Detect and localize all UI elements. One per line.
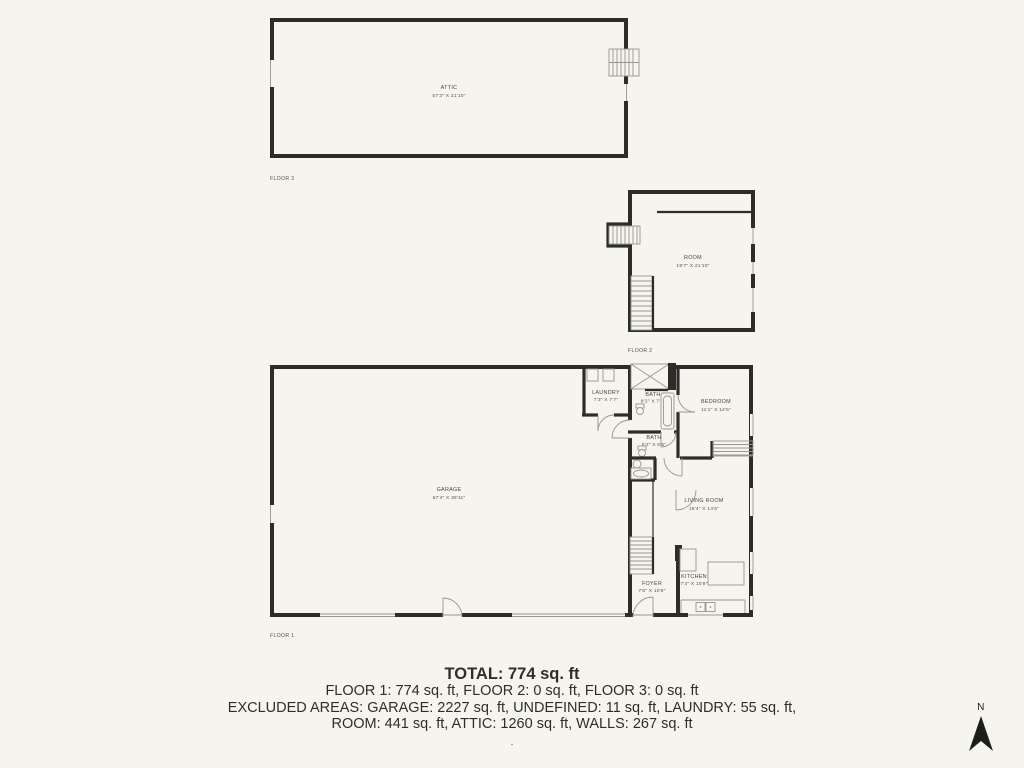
attic-label: ATTIC — [441, 85, 458, 91]
floor1-stairs — [630, 537, 653, 574]
exterior-steps — [712, 441, 753, 458]
bathtub-icon — [661, 393, 674, 429]
room-bath-mid: BATH 8'2" X 6'6" — [638, 435, 666, 457]
bedroom-window — [750, 414, 757, 436]
floor2-stairs-lower — [631, 276, 653, 330]
undefined-area — [631, 363, 676, 390]
floorplan-page: ATTIC 57'3" X 21'10" FLOOR 3 — [0, 0, 1024, 768]
garage-label: GARAGE — [437, 487, 462, 493]
room-kitchen: KITCHEN 7'4" X 10'9" — [675, 545, 745, 619]
room-label: ROOM — [684, 255, 702, 261]
summary-footnote: . — [0, 736, 1024, 748]
kitchen-window — [688, 612, 723, 619]
floor3-label: FLOOR 3 — [270, 176, 294, 182]
mechanical-closet — [628, 458, 655, 480]
attic-window-right — [623, 84, 630, 101]
compass-north-label: N — [960, 702, 1002, 713]
attic-window-left — [267, 60, 274, 87]
living-label: LIVING ROOM — [684, 498, 723, 504]
dryer-icon — [603, 369, 614, 381]
floor2-label: FLOOR 2 — [628, 348, 652, 354]
laundry-dims: 7'3" X 7'7" — [594, 397, 618, 403]
attic-dims: 57'3" X 21'10" — [432, 93, 465, 99]
garage-window-left — [267, 505, 274, 523]
kitchen-sink-icon — [696, 603, 715, 612]
bath-mid-label: BATH — [646, 435, 661, 441]
north-compass: N — [960, 702, 1002, 759]
bath-top-label: BATH — [645, 392, 660, 398]
north-arrow-icon — [963, 714, 999, 754]
floor1-plan: LAUNDRY 7'3" X 7'7" BATH 8'2" X 7'7" — [267, 363, 757, 639]
bedroom-dims: 11'1" X 14'5" — [701, 407, 731, 413]
bedroom-label: BEDROOM — [701, 399, 731, 405]
laundry-door — [598, 415, 614, 431]
garage-dims: 57'4" X 39'11" — [433, 495, 466, 501]
room-dims: 19'7" X 21'10" — [676, 263, 709, 269]
foyer-dims: 7'6" X 10'8" — [638, 588, 665, 594]
kitchen-label: KITCHEN — [681, 574, 707, 580]
attic-stairs — [609, 49, 639, 76]
kitchen-island — [708, 562, 744, 585]
total-area: TOTAL: 774 sq. ft — [0, 665, 1024, 683]
toilet-icon — [638, 446, 646, 457]
floor3-plan: ATTIC 57'3" X 21'10" FLOOR 3 — [267, 20, 639, 182]
garage-hall-door — [612, 420, 630, 438]
floor-totals: FLOOR 1: 774 sq. ft, FLOOR 2: 0 sq. ft, … — [0, 683, 1024, 700]
bedroom-door — [678, 395, 695, 412]
shower-icon — [631, 468, 651, 479]
laundry-label: LAUNDRY — [592, 390, 620, 396]
living-dims: 16'4" X 14'6" — [689, 506, 719, 512]
water-heater-icon — [633, 460, 641, 468]
foyer-entry-door — [633, 597, 653, 619]
fridge-icon — [680, 549, 696, 571]
garage-entry-door — [443, 598, 462, 619]
washer-icon — [587, 369, 598, 381]
excluded-areas-line1: EXCLUDED AREAS: GARAGE: 2227 sq. ft, UND… — [0, 700, 1024, 717]
floorplan-drawing: ATTIC 57'3" X 21'10" FLOOR 3 — [0, 0, 1024, 768]
living-room-door — [664, 458, 682, 476]
toilet-icon — [636, 404, 644, 415]
garage-door-2 — [512, 612, 625, 619]
excluded-areas-line2: ROOM: 441 sq. ft, ATTIC: 1260 sq. ft, WA… — [0, 716, 1024, 733]
floor1-label: FLOOR 1 — [270, 633, 294, 639]
area-summary: TOTAL: 774 sq. ft FLOOR 1: 774 sq. ft, F… — [0, 665, 1024, 748]
garage-door-1 — [320, 612, 395, 619]
kitchen-dims: 7'4" X 10'9" — [680, 581, 707, 587]
floor2-stairs-upper — [609, 226, 640, 244]
room-garage: GARAGE 57'4" X 39'11" — [267, 487, 625, 619]
foyer-label: FOYER — [642, 581, 662, 587]
room-bath-top: BATH 8'2" X 7'7" — [636, 390, 674, 429]
floor2-plan: ROOM 19'7" X 21'10" FLOOR 2 — [608, 192, 757, 354]
room-windows-right — [750, 228, 757, 312]
